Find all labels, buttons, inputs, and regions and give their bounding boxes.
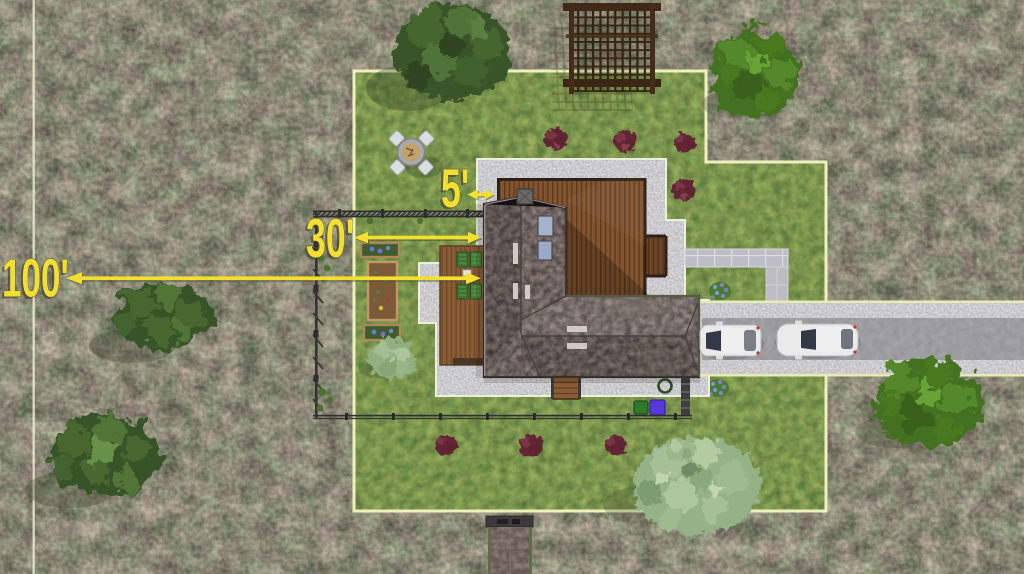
svg-text:5': 5'	[441, 157, 469, 219]
svg-text:30': 30'	[306, 207, 354, 269]
svg-text:100': 100'	[2, 248, 69, 308]
